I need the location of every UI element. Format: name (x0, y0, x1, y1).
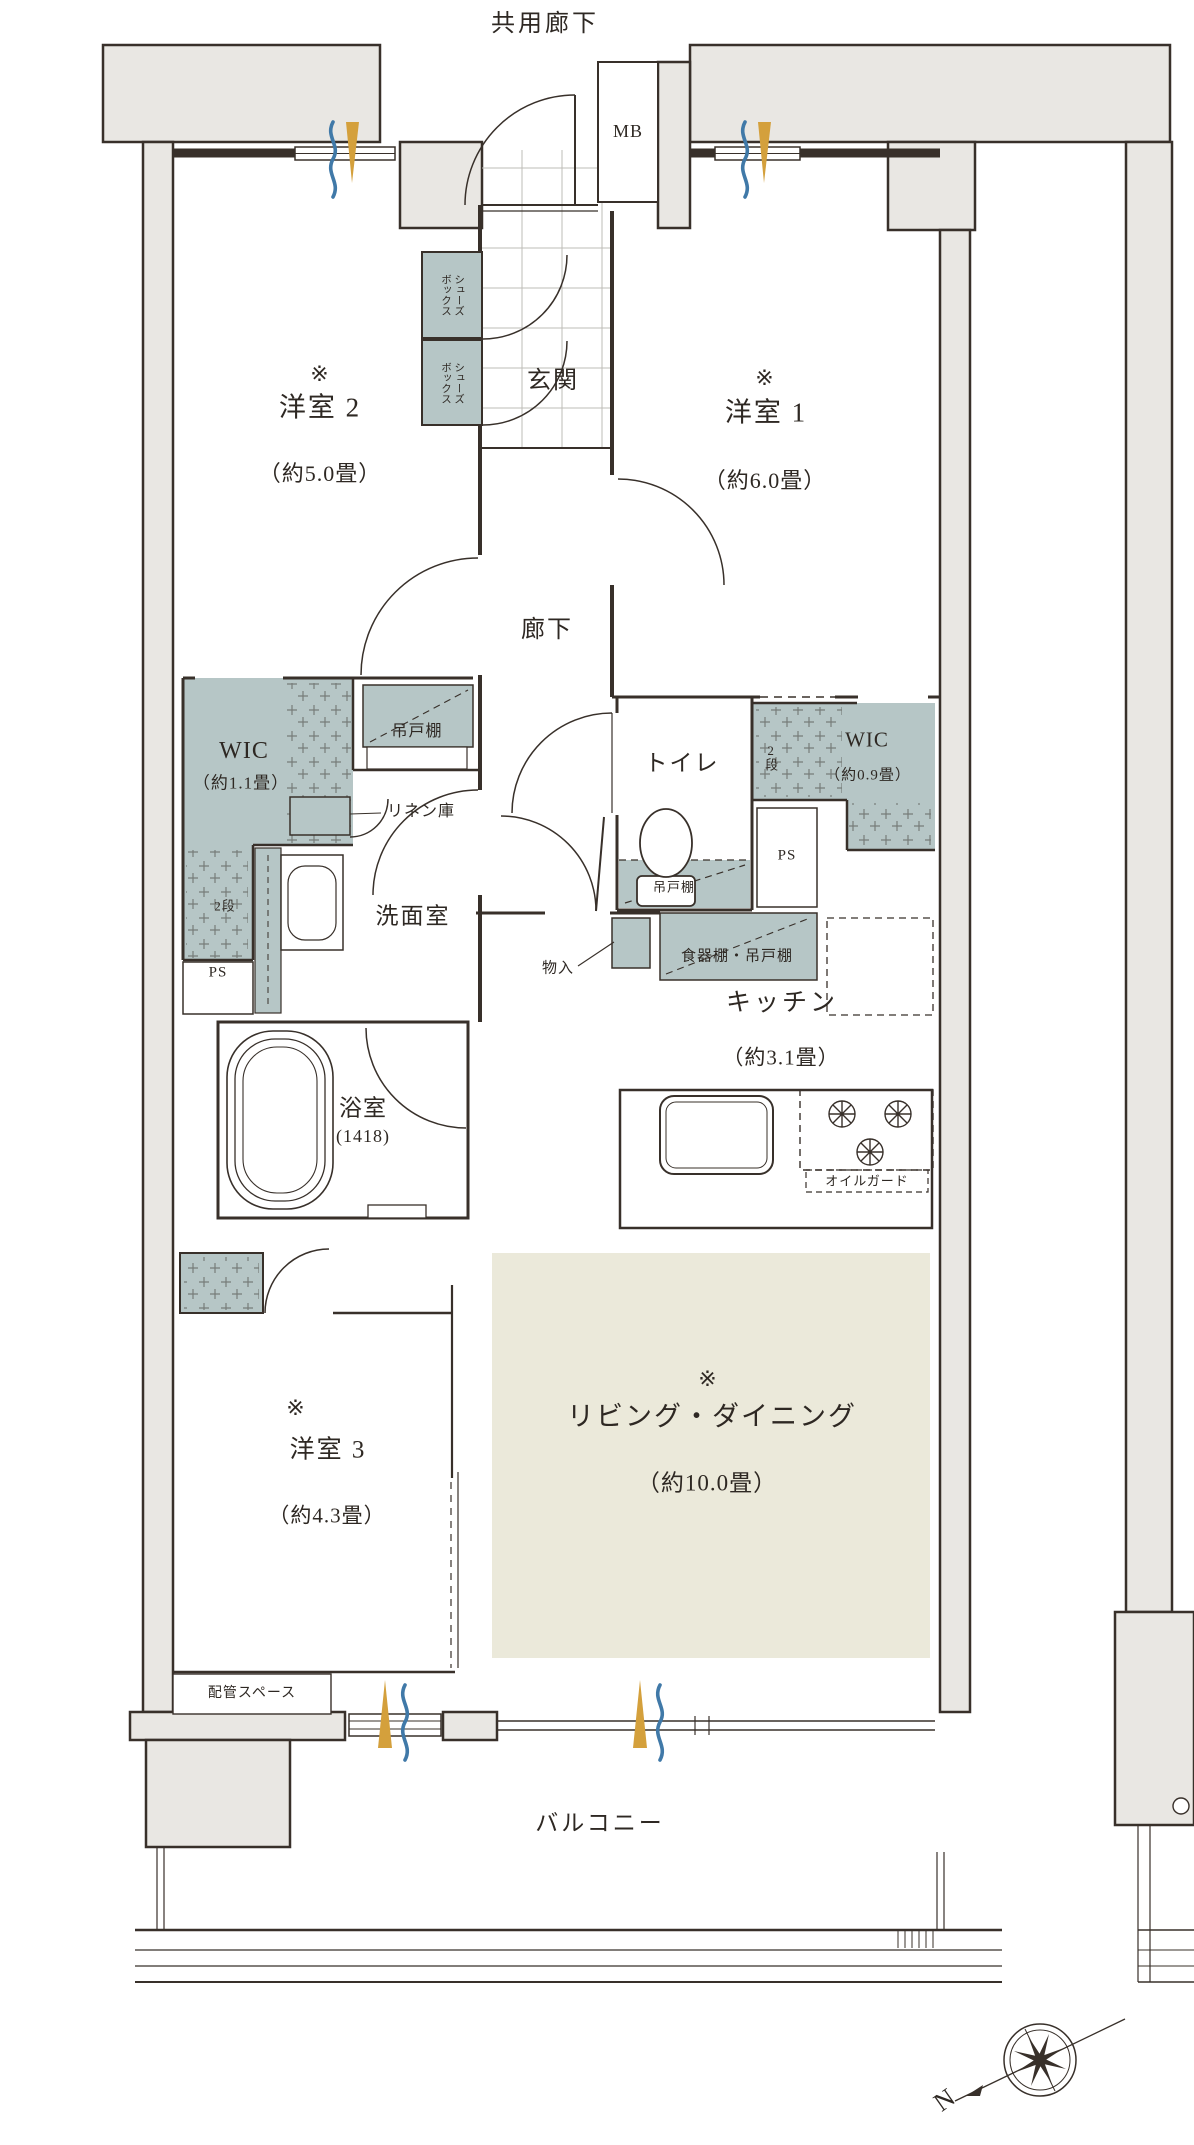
yoshitsu3-mark: ※ (286, 1397, 305, 1419)
oil-guard-label: オイルガード (825, 1175, 909, 1188)
shoes-box-label-2: シューズボックス (439, 362, 465, 404)
mononire-label: 物入 (542, 962, 574, 977)
window-living-sliding (497, 1716, 935, 1735)
yoshitsu1-mark: ※ (755, 367, 774, 389)
ps-right-label: PS (778, 849, 797, 864)
toilet-bowl (640, 809, 692, 877)
tsuridana-toilet-label: 吊戸棚 (653, 881, 695, 894)
dish-cabinet (660, 913, 817, 980)
vent-wave-icon (403, 1685, 408, 1760)
yoshitsu3-size: （約4.3畳） (268, 1506, 385, 1527)
kitchen-name: キッチン (726, 991, 838, 1016)
toilet-label: トイレ (645, 752, 720, 775)
compass-icon (955, 2019, 1125, 2101)
storage-mononire (612, 918, 650, 968)
yoshitsu3-door-arc (265, 1249, 329, 1313)
bath-name: 浴室 (339, 1097, 387, 1120)
toilet-door-arc (512, 713, 612, 813)
ps-left-label: PS (209, 966, 228, 981)
yoshitsu2-name: 洋室 2 (279, 395, 361, 422)
linen-leader (350, 813, 381, 814)
hall-door-leaf (596, 817, 604, 911)
senmen-label: 洗面室 (376, 905, 451, 928)
yoshitsu3-name: 洋室 3 (290, 1438, 367, 1463)
rouka-label: 廊下 (521, 618, 573, 642)
living-name: リビング・ダイニング (567, 1404, 857, 1431)
genkan-tiles (482, 150, 610, 448)
mb-label: MB (613, 122, 643, 140)
living-size: （約10.0畳） (637, 1472, 777, 1495)
mononire-leader (578, 942, 614, 966)
wic-right-name: WIC (845, 730, 889, 751)
yoshitsu2-mark: ※ (310, 363, 329, 385)
wic-left-size: （約1.1畳） (193, 775, 289, 792)
wic-right-nidan: 2段 (762, 743, 778, 771)
window-yoshitsu3 (349, 1714, 441, 1736)
shoes-box-label-1: シューズボックス (439, 274, 465, 316)
floor-plan: 共用廊下 ※ 洋室 2 （約5.0畳） ※ 洋室 1 （約6.0畳） 玄関 MB… (0, 0, 1194, 2145)
balcony-drain (1173, 1798, 1189, 1814)
tsuridana-left-label: 吊戸棚 (391, 724, 442, 740)
linen-label: リネン庫 (387, 804, 455, 820)
yoshitsu2-door-arc (361, 558, 478, 675)
hall-door-arc (501, 816, 596, 911)
wic-left-name: WIC (219, 739, 269, 763)
genkan-label: 玄関 (527, 369, 579, 393)
haikan-label: 配管スペース (208, 1687, 296, 1701)
fridge-space (827, 918, 933, 1015)
wic-right-size: （約0.9畳） (825, 769, 911, 784)
linen-door-arc (350, 799, 388, 837)
living-mark: ※ (698, 1368, 717, 1390)
shoes-door-arc-1 (483, 255, 567, 339)
yoshitsu2-size: （約5.0畳） (259, 463, 382, 485)
wic-left-nidan: 2段 (214, 900, 236, 913)
washbasin-bowl (288, 866, 336, 940)
shared-corridor-label: 共用廊下 (491, 12, 599, 36)
kitchen-size: （約3.1畳） (722, 1048, 839, 1069)
yoshitsu1-name: 洋室 1 (725, 400, 807, 427)
bath-size: (1418) (336, 1127, 390, 1145)
linen-closet (290, 797, 350, 835)
yoshitsu1-size: （約6.0畳） (704, 470, 827, 492)
vent-triangle-icon (633, 1680, 647, 1748)
balcony-label: バルコニー (535, 1812, 665, 1835)
shokkidana-label: 食器棚・吊戸棚 (681, 950, 793, 965)
vent-wave-icon (658, 1685, 663, 1760)
living-dining-floor (492, 1253, 930, 1658)
yoshitsu1-door-arc (618, 479, 724, 585)
bath-step (368, 1205, 426, 1218)
